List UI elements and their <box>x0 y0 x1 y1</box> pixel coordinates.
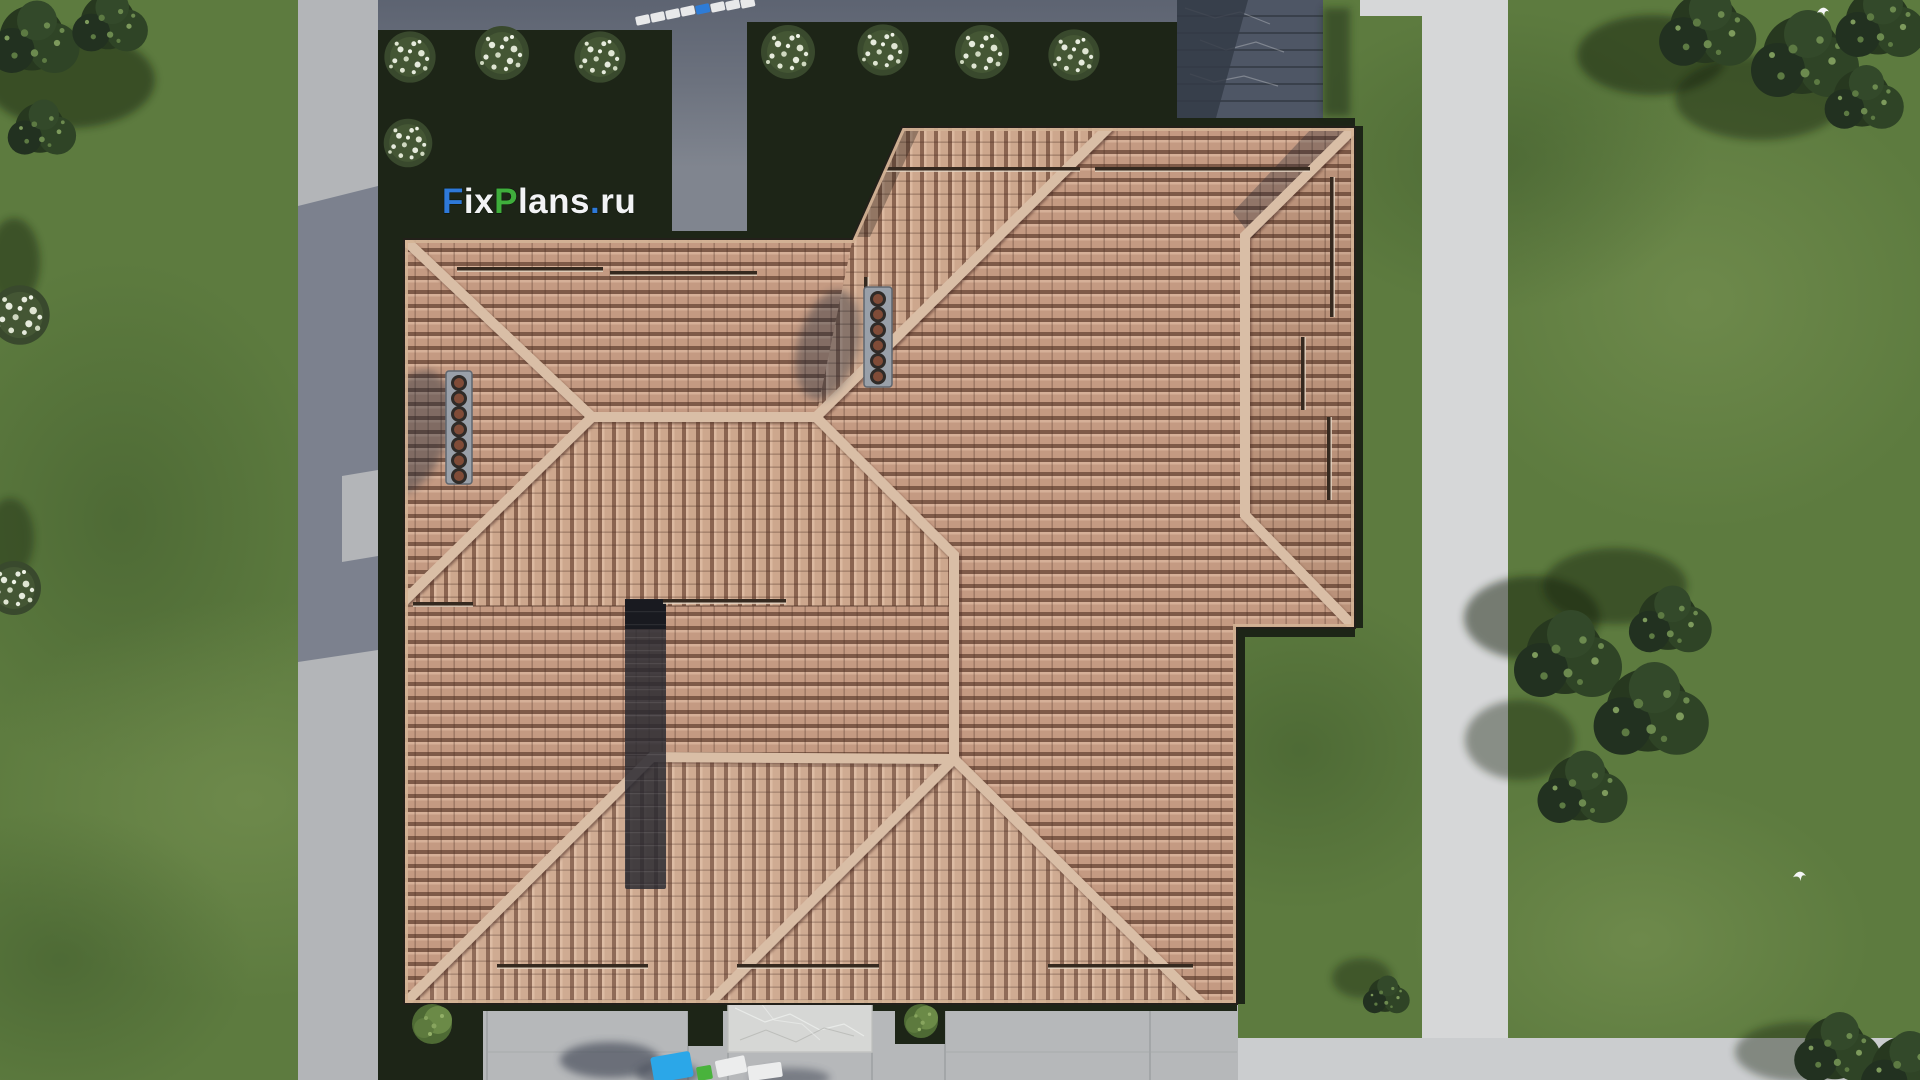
block-green <box>696 1065 713 1080</box>
aerial-render: FixPlans.ru <box>0 0 1920 1080</box>
render-canvas: FixPlans.ru <box>0 0 1920 1080</box>
path-right-vertical <box>1422 0 1508 1044</box>
house-roof <box>358 126 1355 1004</box>
chimney-shadow-strip <box>625 599 666 889</box>
watermark-letters-ix: ix <box>464 182 494 221</box>
garden-strip-west <box>378 237 404 1004</box>
garden-strip-wing-north <box>903 118 1355 127</box>
watermark-letter-f: F <box>442 182 464 221</box>
garden-bed-south-mid <box>688 1004 723 1046</box>
watermark-letters-ru: ru <box>600 182 636 221</box>
watermark-letters-lans: lans <box>518 182 590 221</box>
path-top-right-corner <box>1360 0 1424 16</box>
garden-strip-wing-south <box>1237 628 1355 637</box>
building-shadow-on-road <box>298 186 378 662</box>
garden-strip-east <box>1237 637 1245 1004</box>
entrance-steps-shadow-on-grass <box>1323 8 1350 116</box>
entrance-steps <box>1177 0 1350 118</box>
watermark-logo: FixPlans.ru <box>442 182 636 221</box>
terrace-slab <box>728 1000 872 1052</box>
watermark-letter-p: P <box>494 182 518 221</box>
garden-strip-wing-east <box>1355 126 1363 628</box>
watermark-dot: . <box>590 182 600 221</box>
garden-strip-north-eave <box>404 231 852 239</box>
